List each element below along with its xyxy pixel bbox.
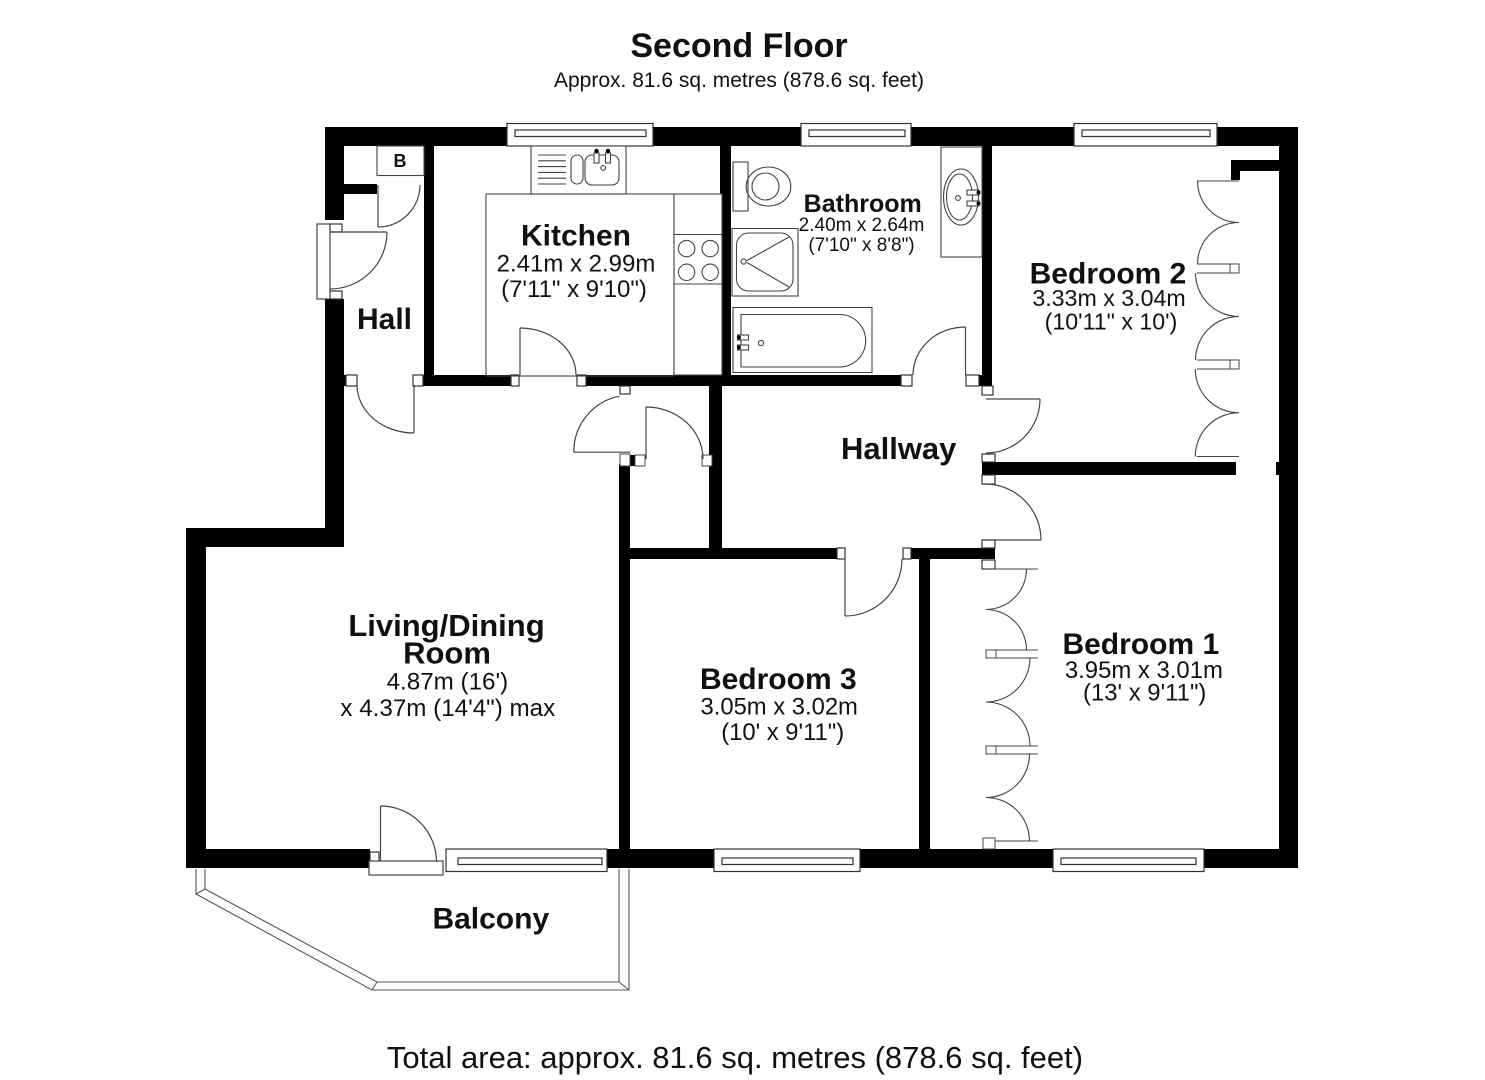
svg-text:Bedroom 3: Bedroom 3: [700, 663, 857, 696]
svg-text:x 4.37m (14'4") max: x 4.37m (14'4") max: [340, 695, 555, 722]
svg-text:Hall: Hall: [357, 303, 412, 336]
svg-text:2.41m x 2.99m: 2.41m x 2.99m: [497, 250, 656, 277]
svg-text:Room: Room: [403, 635, 491, 670]
svg-text:Kitchen: Kitchen: [521, 220, 631, 253]
svg-text:Hallway: Hallway: [841, 431, 957, 466]
svg-text:4.87m (16'): 4.87m (16'): [387, 669, 509, 696]
svg-text:(10'11" x 10'): (10'11" x 10'): [1045, 308, 1178, 334]
svg-text:(7'10" x 8'8"): (7'10" x 8'8"): [808, 235, 914, 256]
svg-text:(13' x 9'11"): (13' x 9'11"): [1083, 680, 1206, 707]
svg-text:(7'11" x 9'10"): (7'11" x 9'10"): [501, 276, 647, 303]
svg-text:Total area: approx. 81.6 sq. m: Total area: approx. 81.6 sq. metres (878…: [387, 1040, 1083, 1075]
svg-text:B: B: [394, 151, 407, 171]
svg-text:(10' x 9'11"): (10' x 9'11"): [721, 719, 844, 746]
svg-text:Approx. 81.6 sq. metres (878.6: Approx. 81.6 sq. metres (878.6 sq. feet): [554, 69, 924, 92]
svg-text:Second Floor: Second Floor: [630, 27, 847, 65]
svg-text:3.05m x 3.02m: 3.05m x 3.02m: [700, 694, 857, 721]
svg-text:Balcony: Balcony: [432, 903, 549, 936]
svg-text:Bathroom: Bathroom: [804, 190, 922, 218]
svg-text:2.40m x 2.64m: 2.40m x 2.64m: [799, 215, 925, 236]
svg-text:3.33m x 3.04m: 3.33m x 3.04m: [1032, 285, 1185, 311]
